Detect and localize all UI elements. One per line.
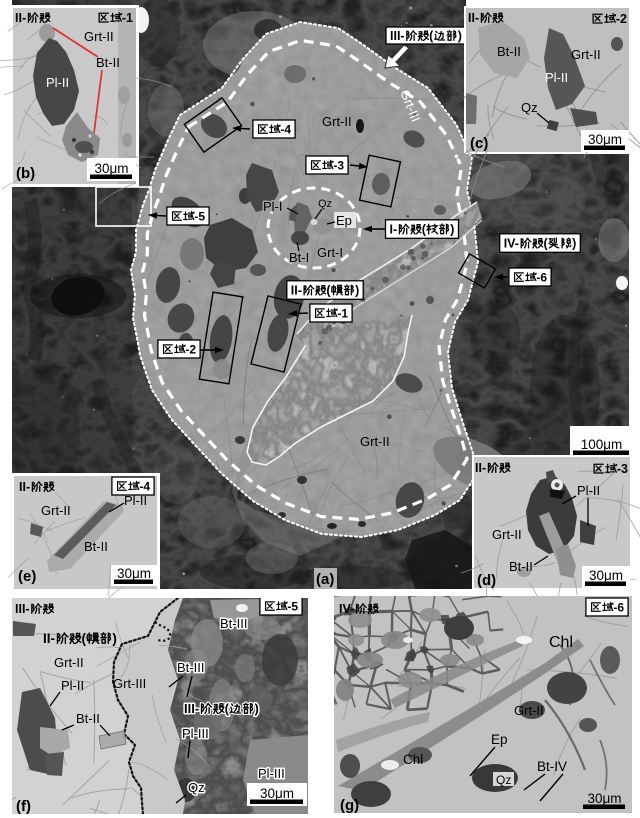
svg-text:(d): (d) (477, 572, 496, 589)
svg-text:(g): (g) (340, 797, 359, 814)
svg-text:-2: -2 (185, 342, 196, 356)
svg-text:Chl: Chl (549, 634, 573, 651)
svg-text:II-: II- (468, 11, 479, 25)
svg-text:II-: II- (475, 461, 486, 475)
svg-text:Grt-II: Grt-II (514, 703, 544, 718)
svg-text:Grt-II: Grt-II (360, 434, 390, 449)
svg-text:II-: II- (291, 284, 302, 298)
svg-text:IV-: IV- (504, 237, 519, 251)
svg-text:30μm: 30μm (588, 132, 622, 147)
svg-text:IV-: IV- (339, 602, 354, 616)
svg-text:Pl-II: Pl-II (61, 678, 84, 693)
svg-text:): ) (450, 223, 454, 237)
svg-text:II-: II- (15, 11, 26, 25)
svg-text:Grt-I: Grt-I (317, 245, 343, 260)
svg-text:): ) (112, 631, 117, 646)
svg-text:-4: -4 (280, 122, 291, 136)
svg-text:30μm: 30μm (260, 786, 294, 801)
svg-text:Pl-III: Pl-III (182, 726, 209, 741)
svg-text:Pl-II: Pl-II (124, 493, 147, 508)
svg-text:100μm: 100μm (581, 437, 623, 452)
svg-text:(c): (c) (470, 135, 488, 152)
svg-text:II-: II- (43, 631, 55, 646)
svg-text:Bt-IV: Bt-IV (537, 759, 567, 774)
svg-text:III-: III- (15, 602, 30, 616)
svg-text:Qz: Qz (188, 780, 205, 795)
svg-text:-4: -4 (139, 479, 150, 493)
svg-text:(a): (a) (316, 571, 334, 588)
svg-text:(e): (e) (18, 568, 36, 585)
svg-text:Ep: Ep (491, 732, 508, 747)
svg-text:30μm: 30μm (588, 791, 622, 806)
svg-text:Bt-II: Bt-II (84, 539, 108, 554)
svg-text:Grt-II: Grt-II (571, 47, 601, 62)
svg-text:II-: II- (19, 480, 30, 494)
svg-text:Bt-II: Bt-II (509, 559, 533, 574)
svg-text:-2: -2 (616, 12, 627, 26)
svg-text:Bt-II: Bt-II (96, 55, 120, 70)
svg-text:): ) (572, 237, 576, 251)
svg-text:-3: -3 (333, 158, 344, 172)
svg-text:Bt-III: Bt-III (177, 660, 204, 675)
svg-text:Qz: Qz (521, 100, 538, 115)
svg-text:Grt-III: Grt-III (113, 676, 146, 691)
svg-text:-5: -5 (194, 209, 205, 223)
svg-text:III-: III- (390, 29, 405, 43)
svg-text:Chl: Chl (403, 752, 423, 767)
svg-text:30μm: 30μm (117, 566, 151, 581)
svg-text:30μm: 30μm (589, 568, 623, 583)
svg-text:(: ( (82, 631, 87, 646)
svg-text:): ) (458, 29, 462, 43)
svg-text:(b): (b) (16, 165, 35, 182)
svg-text:Grt-II: Grt-II (84, 29, 114, 44)
svg-text:(: ( (225, 701, 230, 716)
svg-text:-6: -6 (536, 270, 547, 284)
svg-text:Pl-III: Pl-III (258, 766, 285, 781)
svg-text:Pl-II: Pl-II (46, 75, 69, 90)
svg-text:Bt-II: Bt-II (76, 711, 100, 726)
svg-text:I-: I- (390, 223, 398, 237)
svg-text:(f): (f) (16, 798, 31, 815)
svg-text:Bt-I: Bt-I (289, 250, 309, 265)
svg-text:30μm: 30μm (95, 161, 129, 176)
svg-text:III-: III- (184, 701, 199, 716)
svg-text:Grt-II: Grt-II (322, 114, 352, 129)
svg-text:Ep: Ep (336, 213, 352, 228)
svg-text:Grt-II: Grt-II (41, 503, 71, 518)
svg-text:Bt-II: Bt-II (497, 44, 521, 59)
svg-text:Pl-II: Pl-II (577, 483, 600, 498)
svg-text:Qz: Qz (496, 773, 511, 787)
svg-text:-1: -1 (122, 11, 133, 25)
svg-text:Grt-II: Grt-II (492, 527, 522, 542)
svg-text:): ) (355, 284, 359, 298)
svg-text:Pl-I: Pl-I (263, 199, 283, 214)
svg-text:-3: -3 (617, 462, 628, 476)
svg-text:-5: -5 (287, 599, 298, 613)
svg-text:Qz: Qz (318, 198, 332, 210)
svg-text:Grt-II: Grt-II (54, 655, 84, 670)
svg-text:Bt-III: Bt-III (220, 616, 247, 631)
svg-text:-1: -1 (337, 306, 348, 320)
svg-text:): ) (255, 701, 259, 716)
svg-text:-6: -6 (613, 600, 624, 614)
svg-text:Pl-II: Pl-II (545, 70, 568, 85)
